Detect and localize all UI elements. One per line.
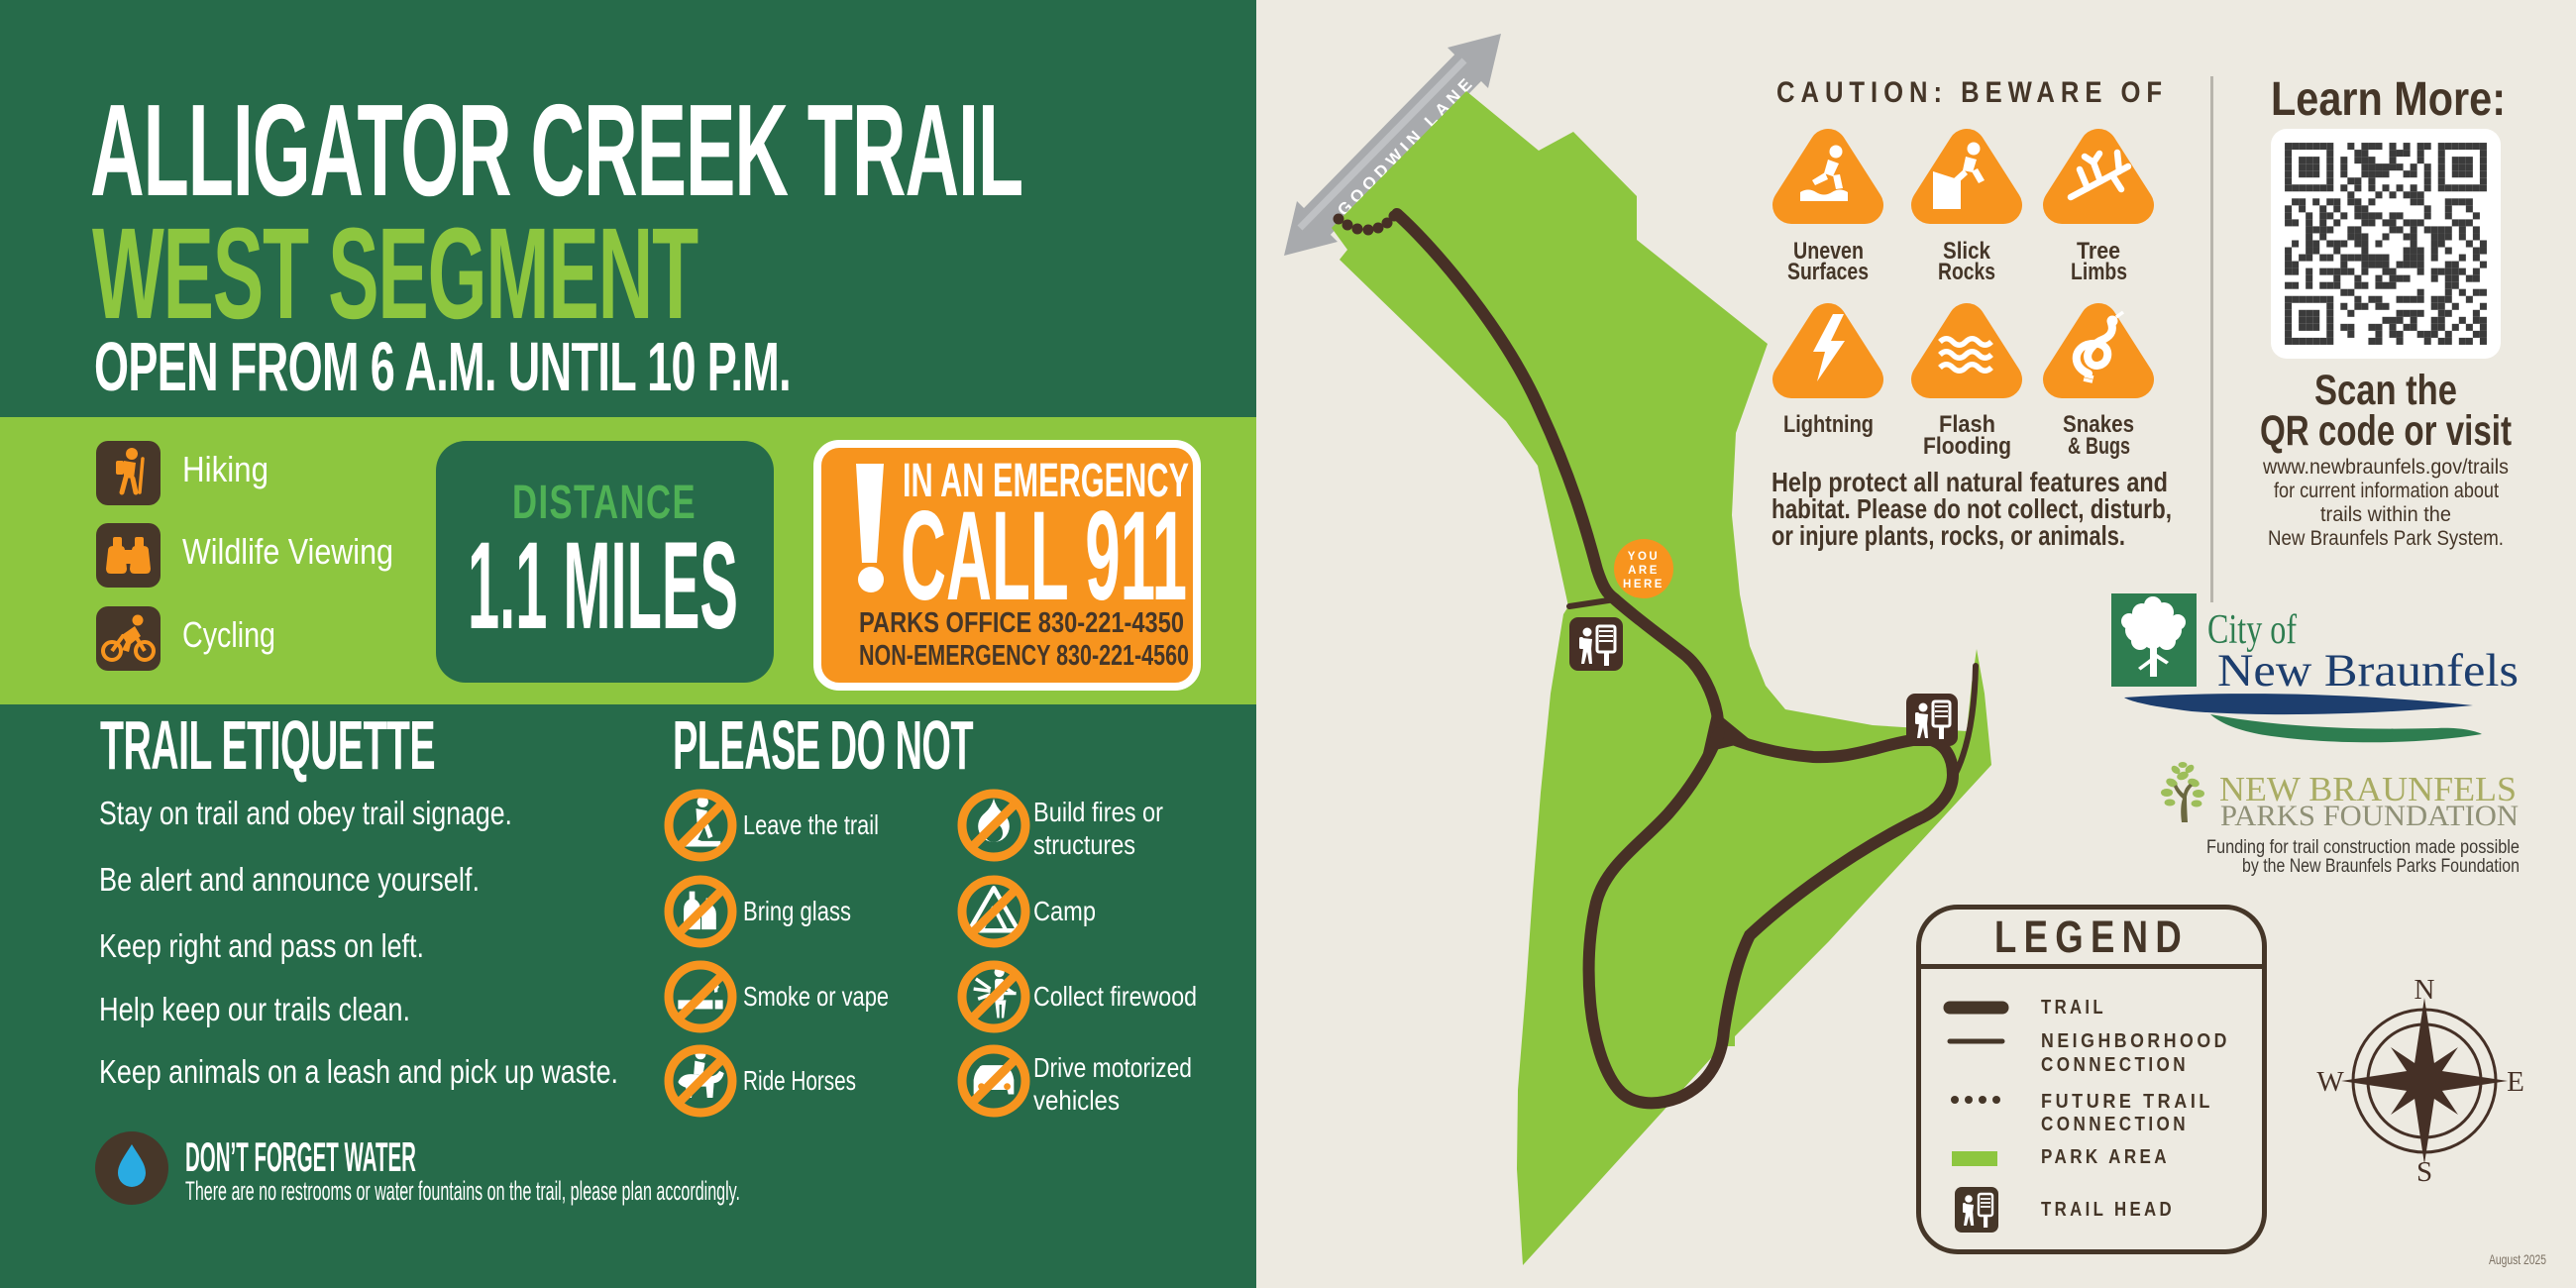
svg-text:S: S <box>2416 1156 2432 1188</box>
svg-text:N: N <box>2415 974 2435 1006</box>
svg-text:ARE: ARE <box>1628 565 1660 577</box>
svg-text:HERE: HERE <box>1623 579 1664 590</box>
svg-text:W: W <box>2316 1066 2344 1098</box>
svg-text:New Braunfels: New Braunfels <box>2217 645 2519 697</box>
svg-text:PARKS FOUNDATION: PARKS FOUNDATION <box>2220 800 2519 832</box>
svg-text:E: E <box>2507 1066 2524 1098</box>
svg-text:YOU: YOU <box>1628 551 1660 563</box>
